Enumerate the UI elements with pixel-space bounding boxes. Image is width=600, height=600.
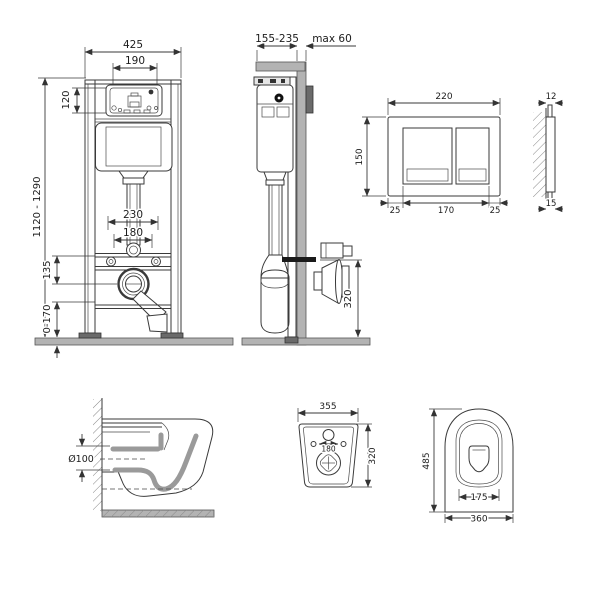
dim-plate-margin-left: 25 [390,206,401,216]
dim-plate-margin-right: 25 [490,206,501,216]
dim-fixing-230: 230 [123,209,143,221]
dim-tank-window-width: 190 [125,55,145,67]
dim-protrusion-top: 12 [546,92,557,102]
dim-feet-range: 0-170 [42,304,53,333]
frame-foot-left [79,333,101,338]
dim-fixing-180: 180 [123,227,143,239]
fixing-hole-left [311,442,316,447]
cistern-side [257,85,293,185]
dim-hole-spacing: 180 [321,445,336,454]
dim-seat-opening-width: 175 [470,493,487,503]
flush-plate-on-wall [306,86,313,113]
dim-bowl-width: 360 [470,515,487,525]
frame-side-view: 155-235 max 60 320 [242,33,370,345]
cistern-neck [119,171,148,178]
bowl-side-dimensions: Ø100 [68,434,110,482]
inlet-hole [323,430,334,441]
outlet-hole [317,451,341,475]
technical-drawing-sheet: 425 190 120 1120 - 1290 230 180 135 [0,0,600,600]
waste-outlet [95,269,171,332]
outlet-cylinder [261,270,289,333]
frame-foot-side [285,337,298,343]
dim-outlet-offset: 135 [42,260,53,279]
floor [242,338,370,345]
flush-plate-side-view: 12 15 [533,92,563,209]
toilet-installation-diagram: 425 190 120 1120 - 1290 230 180 135 [0,0,600,600]
wall-hatch [93,399,102,511]
dim-bowl-depth: 485 [422,452,432,469]
wall [297,62,306,345]
wall-hatch [533,112,546,197]
bowl-back-view: 355 180 320 [298,402,378,487]
top-crossbar-side [254,77,290,85]
frame-front-view: 425 190 120 1120 - 1290 230 180 135 [32,39,233,358]
dim-protrusion-bottom: 15 [546,199,557,209]
top-bracket [256,62,305,71]
dim-plate-width: 220 [435,92,452,102]
fixing-hole-right [341,442,346,447]
bowl-side-section: Ø100 [68,398,214,517]
dim-plate-height: 150 [355,148,365,165]
dim-outlet-diameter: Ø100 [68,454,94,465]
flush-plate-front-view: 220 150 25 170 25 [355,92,508,216]
dim-frame-height: 1120 - 1290 [32,177,43,238]
dim-wall-max: max 60 [312,33,352,45]
bowl-top-view: 175 485 360 [422,409,513,525]
fixing-rod-left [107,257,116,266]
cistern [96,123,173,184]
dim-overall-width: 425 [123,39,143,51]
flush-bend-connector [127,243,141,257]
bowl-profile [100,419,213,496]
dim-back-height: 320 [368,447,378,464]
fixing-rod-right [152,257,161,266]
fixing-crossbar [95,243,171,270]
dim-plate-buttons-width: 170 [438,206,454,216]
threaded-rod [282,257,316,262]
trap-curve [115,436,196,489]
dim-back-width: 355 [319,402,336,412]
dim-panel-height: 120 [61,90,72,109]
access-panel [106,85,162,116]
dim-outlet-height: 320 [343,289,354,308]
dim-depth-range: 155-235 [255,33,299,45]
plate-profile [546,117,555,192]
frame-foot-right [161,333,183,338]
floor [35,338,233,345]
